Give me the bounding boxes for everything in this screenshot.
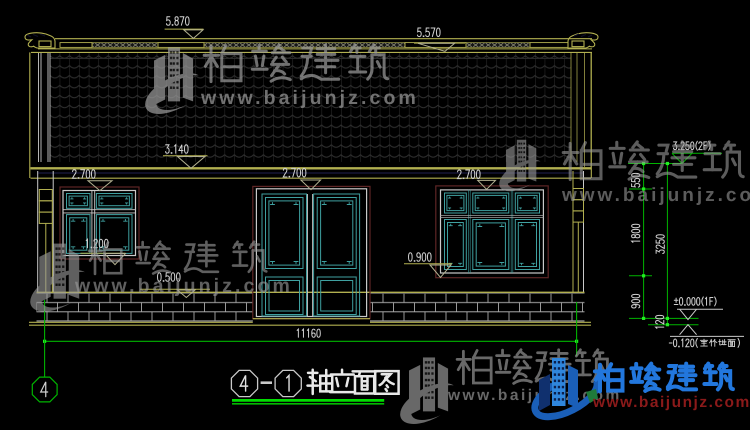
svg-text:www.baijunjz.com: www.baijunjz.com xyxy=(200,87,419,109)
svg-text:www.baijunjz.com: www.baijunjz.com xyxy=(592,394,750,411)
svg-text:www.baijunjz.com: www.baijunjz.com xyxy=(561,185,750,206)
svg-text:www.baijunjz.com: www.baijunjz.com xyxy=(74,275,293,297)
